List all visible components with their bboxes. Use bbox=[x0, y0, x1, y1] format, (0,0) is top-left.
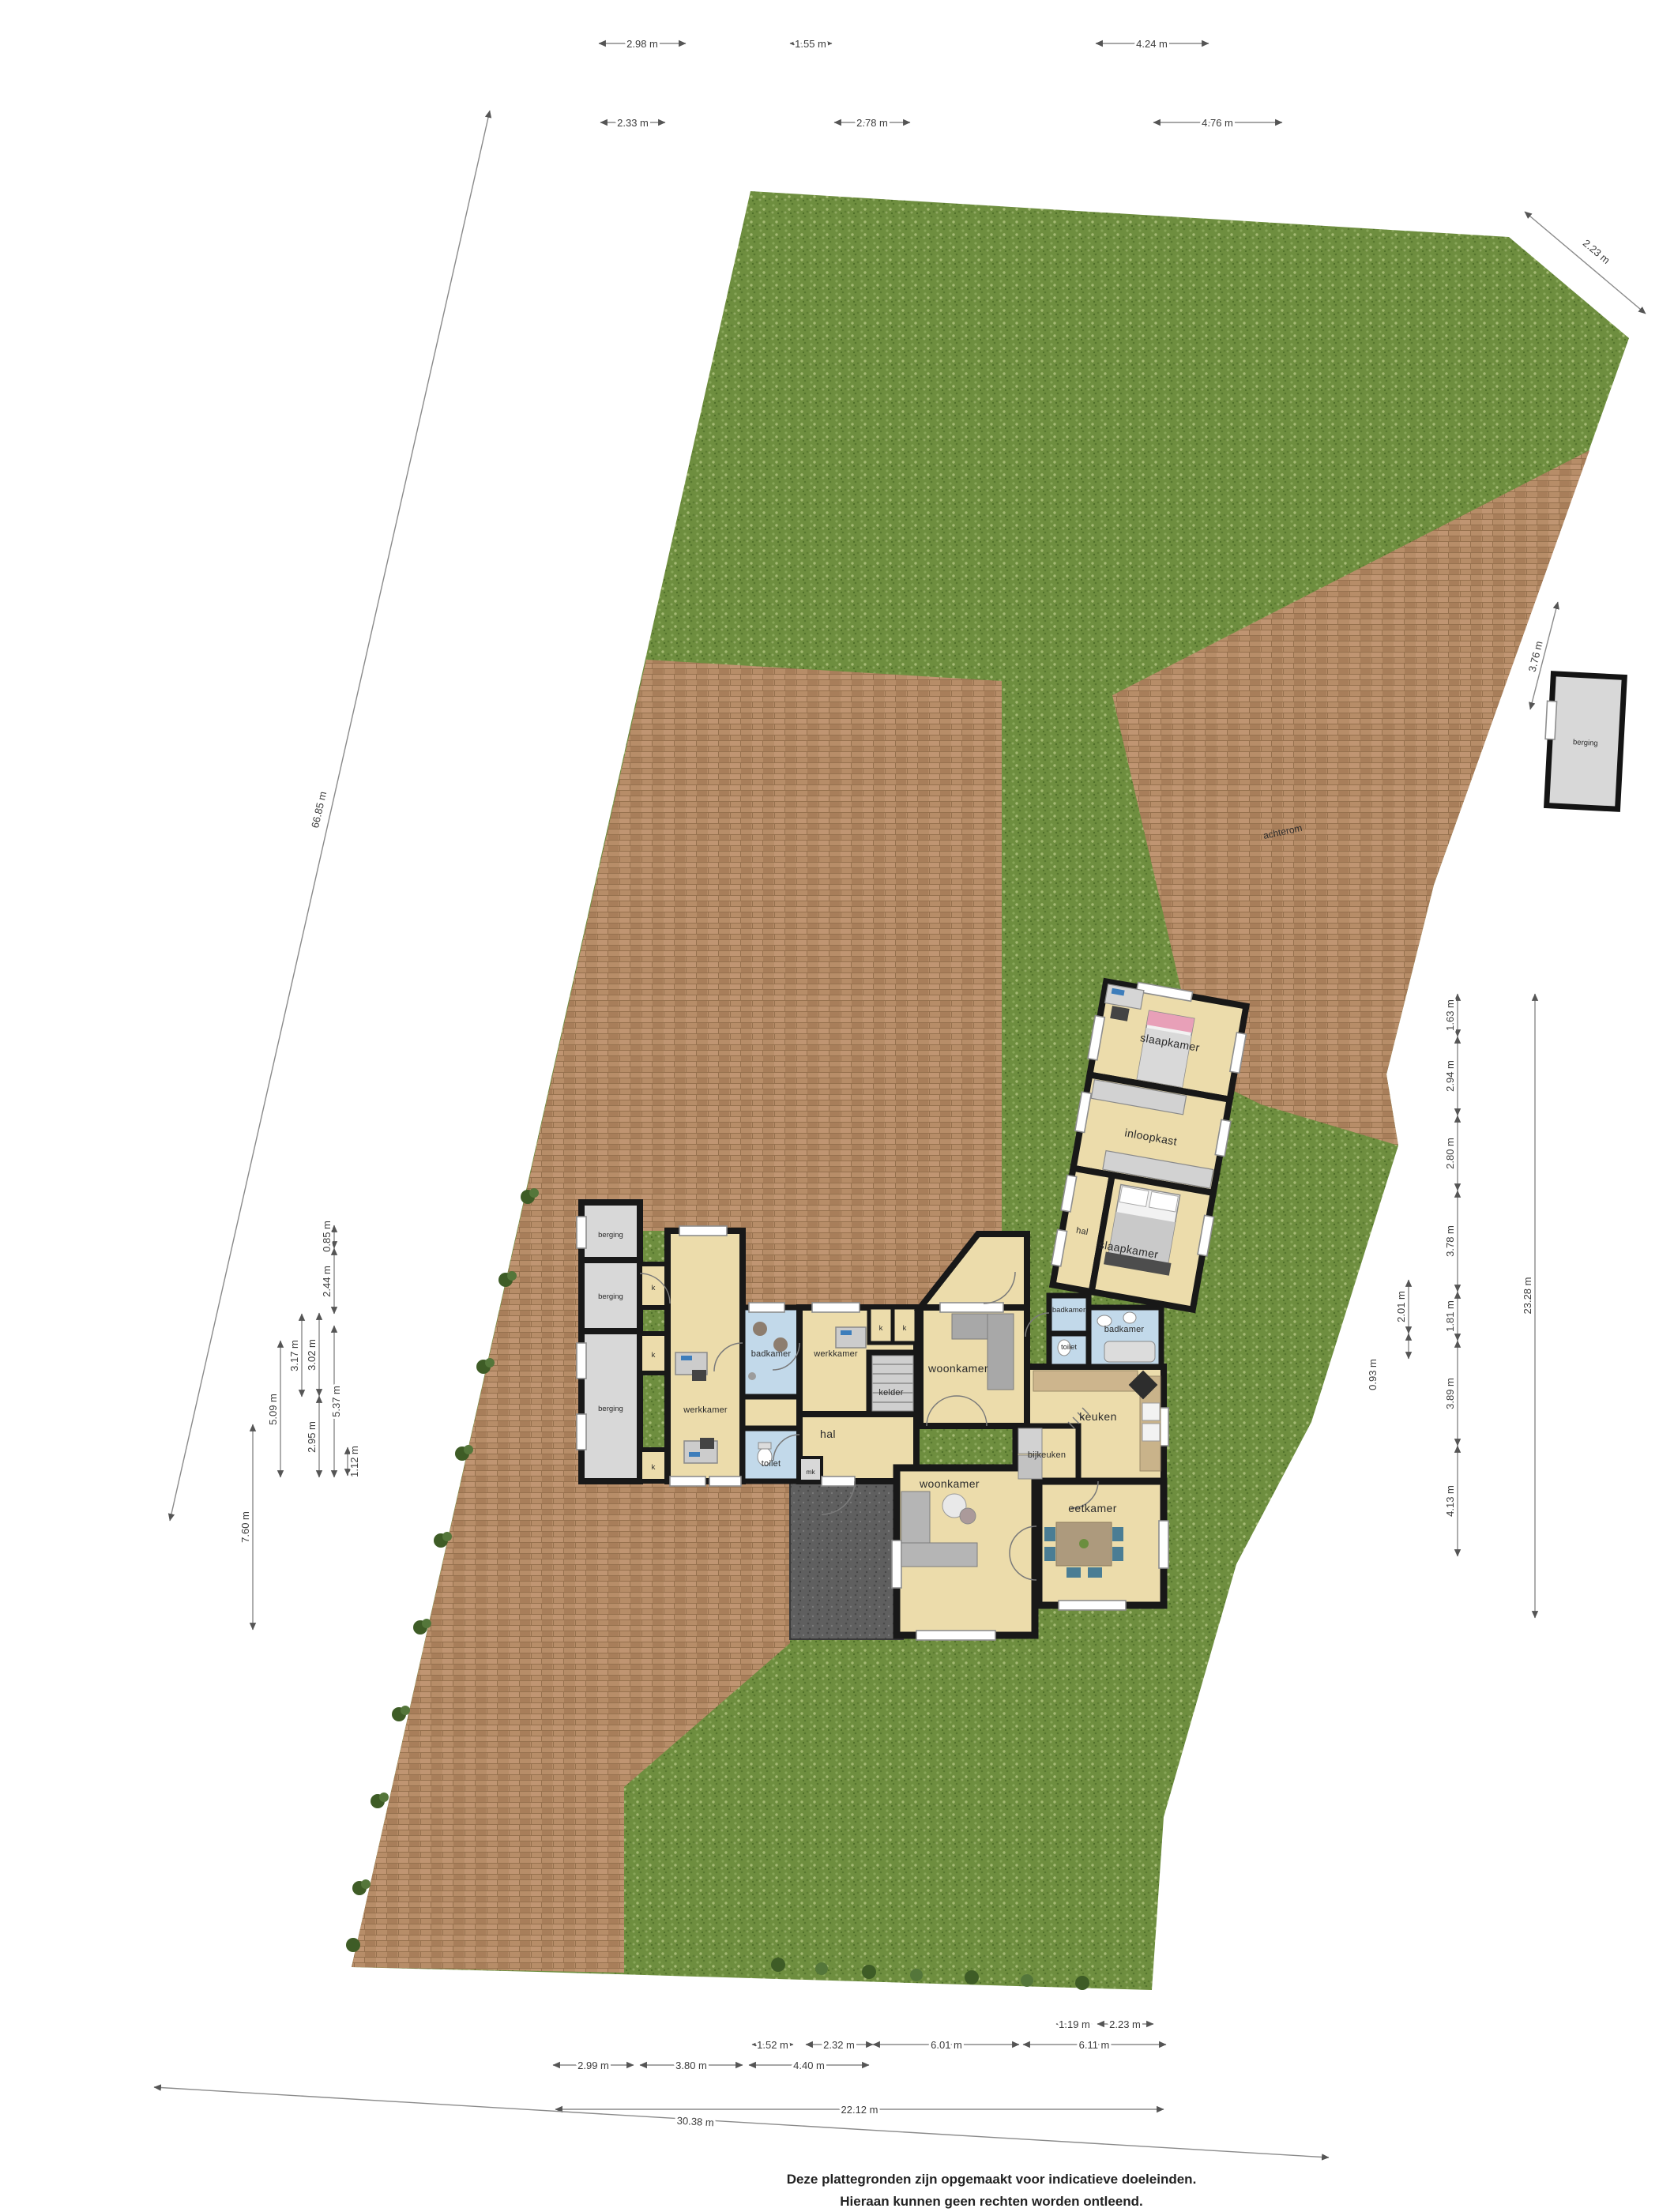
svg-text:30.38 m: 30.38 m bbox=[676, 2115, 714, 2129]
svg-text:1.12 m: 1.12 m bbox=[348, 1446, 360, 1477]
svg-text:6.11 m: 6.11 m bbox=[1079, 2039, 1110, 2051]
svg-text:4.13 m: 4.13 m bbox=[1444, 1485, 1456, 1517]
svg-text:22.12 m: 22.12 m bbox=[841, 2104, 878, 2116]
k4-label: k bbox=[879, 1324, 883, 1333]
svg-text:0.85 m: 0.85 m bbox=[321, 1221, 333, 1252]
svg-text:7.60 m: 7.60 m bbox=[239, 1511, 251, 1543]
svg-text:2.23 m: 2.23 m bbox=[1109, 2018, 1141, 2030]
woonkamer-2-label: woonkamer bbox=[919, 1477, 980, 1490]
svg-text:3.80 m: 3.80 m bbox=[675, 2060, 707, 2071]
mk-label: mk bbox=[806, 1468, 815, 1476]
svg-text:4.76 m: 4.76 m bbox=[1202, 117, 1233, 129]
svg-text:2.23 m: 2.23 m bbox=[1581, 237, 1612, 266]
bijkeuken-label: bijkeuken bbox=[1028, 1450, 1066, 1460]
svg-text:2.44 m: 2.44 m bbox=[321, 1266, 333, 1297]
berging-1-label: berging bbox=[598, 1231, 623, 1240]
svg-text:0.93 m: 0.93 m bbox=[1367, 1359, 1379, 1390]
svg-text:2.78 m: 2.78 m bbox=[856, 117, 888, 129]
toilet-1-label: toilet bbox=[762, 1459, 781, 1469]
svg-text:1.63 m: 1.63 m bbox=[1444, 999, 1456, 1031]
hal-main-label: hal bbox=[820, 1428, 836, 1440]
svg-text:1.55 m: 1.55 m bbox=[795, 38, 826, 50]
badkamer-wing-b-label: badkamer bbox=[1104, 1325, 1145, 1334]
svg-text:2.33 m: 2.33 m bbox=[617, 117, 649, 129]
footer-line-1: Deze plattegronden zijn opgemaakt voor i… bbox=[787, 2172, 1197, 2187]
werkkamer-1-label: werkkamer bbox=[683, 1405, 728, 1415]
svg-text:3.76 m: 3.76 m bbox=[1526, 640, 1545, 673]
svg-text:3.02 m: 3.02 m bbox=[306, 1339, 318, 1371]
dim-top-row1: 2.98 m 1.55 m 4.24 m bbox=[599, 38, 1209, 50]
dim-bottom-rows: 1.19 m 2.23 m 1.52 m 2.32 m 6.01 m 6.11 … bbox=[154, 2018, 1329, 2157]
keuken-label: keuken bbox=[1079, 1410, 1117, 1423]
svg-text:2.99 m: 2.99 m bbox=[577, 2060, 609, 2071]
toilet-wing-label: toilet bbox=[1061, 1343, 1077, 1352]
shed: berging bbox=[1542, 673, 1625, 809]
footer-line-2: Hieraan kunnen geen rechten worden ontle… bbox=[840, 2194, 1143, 2209]
svg-text:2.98 m: 2.98 m bbox=[626, 38, 658, 50]
svg-text:66.85 m: 66.85 m bbox=[309, 790, 329, 829]
svg-text:2.80 m: 2.80 m bbox=[1444, 1138, 1456, 1169]
shed-label: berging bbox=[1573, 738, 1598, 748]
kelder-label: kelder bbox=[878, 1388, 903, 1398]
svg-text:3.78 m: 3.78 m bbox=[1444, 1225, 1456, 1257]
svg-text:6.01 m: 6.01 m bbox=[931, 2039, 962, 2051]
badkamer-1-label: badkamer bbox=[751, 1349, 792, 1359]
svg-text:4.24 m: 4.24 m bbox=[1136, 38, 1168, 50]
eetkamer-label: eetkamer bbox=[1068, 1502, 1117, 1514]
berging-3-label: berging bbox=[598, 1405, 623, 1413]
svg-text:2.95 m: 2.95 m bbox=[306, 1421, 318, 1453]
werkkamer-2-label: werkkamer bbox=[813, 1349, 858, 1359]
svg-text:2.32 m: 2.32 m bbox=[823, 2039, 855, 2051]
svg-text:2.94 m: 2.94 m bbox=[1444, 1060, 1456, 1092]
woonkamer-1-label: woonkamer bbox=[927, 1362, 988, 1375]
k2-label: k bbox=[652, 1351, 656, 1360]
floorplan-canvas: achterom berging bbox=[0, 0, 1659, 2212]
svg-text:5.37 m: 5.37 m bbox=[330, 1386, 342, 1417]
badkamer-wing-a-label: badkamer bbox=[1052, 1306, 1085, 1315]
dim-left-boundary: 66.85 m bbox=[170, 111, 490, 1521]
svg-text:5.09 m: 5.09 m bbox=[267, 1394, 279, 1425]
berging-2-label: berging bbox=[598, 1292, 623, 1301]
svg-text:1.19 m: 1.19 m bbox=[1059, 2018, 1090, 2030]
svg-text:3.89 m: 3.89 m bbox=[1444, 1378, 1456, 1409]
svg-text:1.52 m: 1.52 m bbox=[757, 2039, 788, 2051]
hall-passage bbox=[743, 1397, 799, 1428]
room-badkamer-wing-a bbox=[1049, 1296, 1089, 1334]
k1-label: k bbox=[652, 1284, 656, 1292]
svg-text:1.81 m: 1.81 m bbox=[1444, 1300, 1456, 1332]
dim-top-row2: 2.33 m 2.78 m 4.76 m bbox=[600, 117, 1282, 129]
dim-left-stack: 0.85 m 2.44 m 3.17 m 3.02 m 5.09 m 2.95 … bbox=[239, 1221, 360, 1630]
k5-label: k bbox=[903, 1324, 907, 1333]
svg-text:4.40 m: 4.40 m bbox=[793, 2060, 825, 2071]
terrace-area bbox=[790, 1483, 903, 1639]
floorplan-page: achterom berging bbox=[0, 0, 1659, 2212]
k3-label: k bbox=[652, 1463, 656, 1472]
footer-disclaimer: Deze plattegronden zijn opgemaakt voor i… bbox=[787, 2172, 1197, 2209]
svg-text:2.01 m: 2.01 m bbox=[1395, 1291, 1407, 1322]
svg-text:23.28 m: 23.28 m bbox=[1522, 1277, 1533, 1315]
svg-text:3.17 m: 3.17 m bbox=[288, 1340, 300, 1371]
